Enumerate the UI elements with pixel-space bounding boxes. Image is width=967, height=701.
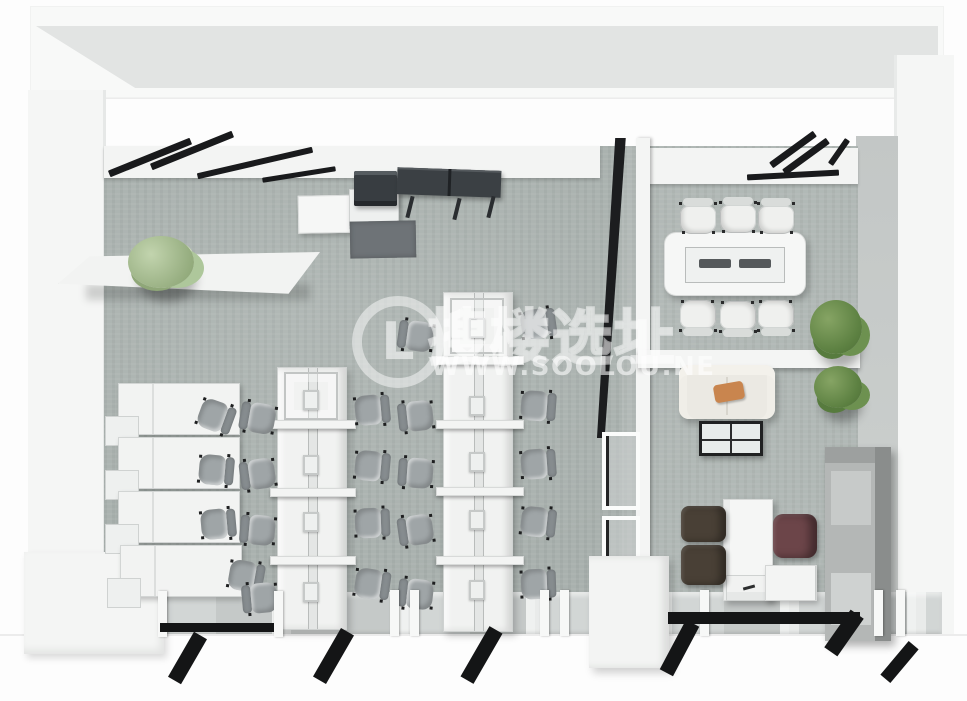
office-chair	[195, 450, 236, 489]
floor-stripe	[660, 620, 700, 676]
chair-armrests	[229, 486, 232, 489]
chair-armrests	[238, 458, 241, 461]
chair-seat	[680, 300, 716, 328]
storefront-post	[410, 590, 419, 636]
chair-seat	[520, 448, 548, 480]
chair-armrests	[388, 537, 391, 540]
chair-seat	[247, 401, 278, 435]
office-chair	[197, 504, 238, 543]
conference-chair	[717, 299, 759, 337]
chair-armrests	[717, 334, 720, 337]
desk-crossbar	[436, 556, 524, 565]
storefront-post	[874, 590, 883, 636]
chair-seat	[758, 300, 794, 328]
desk-crossbar	[436, 356, 524, 365]
office-chair	[396, 396, 438, 436]
office-chair	[517, 445, 557, 484]
plant	[128, 236, 194, 288]
chair-armrests	[555, 336, 558, 339]
chair-armrests	[399, 454, 402, 457]
chair-seat	[520, 505, 549, 538]
chair-armrests	[794, 198, 797, 201]
conference-chair	[755, 298, 797, 336]
chair-back	[723, 197, 753, 205]
chair-back	[381, 508, 391, 536]
chair-back	[723, 329, 753, 337]
monitor	[303, 582, 319, 602]
window-mullion-bar	[262, 166, 336, 183]
window-mullion-bar	[747, 170, 839, 181]
wall-base-bar	[160, 623, 274, 632]
chair-armrests	[234, 537, 237, 540]
chair-armrests	[677, 333, 680, 336]
chair-armrests	[384, 601, 387, 604]
chair-seat	[198, 454, 227, 486]
chair-seat	[720, 205, 756, 233]
floor-stripe	[461, 626, 503, 684]
storefront-post	[274, 591, 283, 637]
office-chair	[351, 390, 392, 429]
plant	[810, 300, 862, 354]
office-chair	[516, 502, 558, 542]
chair-seat	[758, 206, 794, 234]
office-chair	[351, 446, 392, 485]
desk-crossbar	[436, 487, 524, 496]
furniture-layer	[0, 0, 967, 701]
desk-crossbar	[436, 420, 524, 429]
chair-armrests	[241, 510, 244, 513]
chair-back	[761, 328, 791, 336]
chair-armrests	[551, 539, 554, 542]
monitor	[303, 390, 319, 410]
chair-armrests	[396, 400, 399, 403]
office-chair	[350, 564, 393, 605]
chair-seat	[354, 394, 383, 426]
chair-seat	[406, 457, 434, 489]
office-chair	[237, 397, 281, 439]
chair-seat	[354, 508, 381, 539]
office-chair	[351, 504, 390, 541]
chair-armrests	[400, 316, 403, 319]
chair-back	[683, 328, 713, 336]
plant	[814, 366, 862, 408]
chair-seat	[680, 206, 716, 234]
office-chair	[239, 510, 280, 549]
chair-armrests	[396, 514, 399, 517]
chair-back	[546, 449, 557, 478]
desk-crossbar	[270, 420, 356, 429]
monitor	[469, 318, 485, 338]
floor-stripe	[880, 641, 918, 683]
wall-base-bar	[668, 612, 860, 624]
chair-armrests	[388, 423, 391, 426]
office-chair	[517, 387, 557, 426]
floor-stripe	[313, 628, 354, 684]
chair-armrests	[243, 397, 246, 400]
guest-chair	[681, 545, 726, 585]
floorplan-render: L 搜楼选址 WWW.SOOLOU.NE	[0, 0, 967, 701]
executive-chair	[773, 514, 817, 558]
guest-chair	[681, 506, 726, 542]
storefront-post	[540, 590, 549, 636]
chair-armrests	[241, 581, 244, 584]
conference-chair	[677, 198, 719, 236]
storefront-post	[390, 590, 399, 636]
monitor	[469, 396, 485, 416]
desk-crossbar	[270, 488, 356, 497]
office-chair	[517, 565, 556, 602]
chair-back	[683, 198, 713, 206]
storefront-post	[560, 590, 569, 636]
monitor	[303, 455, 319, 475]
office-chair	[396, 316, 439, 357]
chair-seat	[720, 301, 756, 329]
floor-stripe	[168, 632, 207, 685]
chair-armrests	[552, 422, 555, 425]
chair-seat	[520, 390, 548, 422]
chair-back	[546, 393, 557, 422]
chair-armrests	[385, 482, 388, 485]
conference-chair	[677, 298, 719, 336]
chair-seat	[200, 508, 229, 540]
chair-armrests	[400, 574, 403, 577]
chair-seat	[353, 567, 383, 600]
chair-seat	[405, 399, 434, 432]
chair-seat	[405, 320, 435, 353]
chair-seat	[248, 514, 277, 546]
window-mullion-bar	[828, 138, 850, 166]
chair-armrests	[755, 333, 758, 336]
desk-crossbar	[270, 556, 356, 565]
chair-seat	[354, 450, 383, 482]
conference-chair	[755, 198, 797, 236]
chair-seat	[519, 308, 549, 341]
chair-seat	[247, 457, 277, 490]
storefront-post	[896, 590, 905, 636]
conference-chair	[717, 197, 759, 235]
chair-seat	[405, 513, 435, 546]
chair-armrests	[554, 478, 557, 481]
monitor	[303, 512, 319, 532]
monitor	[469, 510, 485, 530]
monitor	[469, 580, 485, 600]
office-chair	[396, 510, 439, 551]
monitor	[469, 452, 485, 472]
chair-armrests	[554, 598, 557, 601]
office-chair	[516, 304, 559, 345]
office-chair	[238, 454, 281, 495]
office-chair	[397, 454, 437, 493]
chair-back	[761, 198, 791, 206]
